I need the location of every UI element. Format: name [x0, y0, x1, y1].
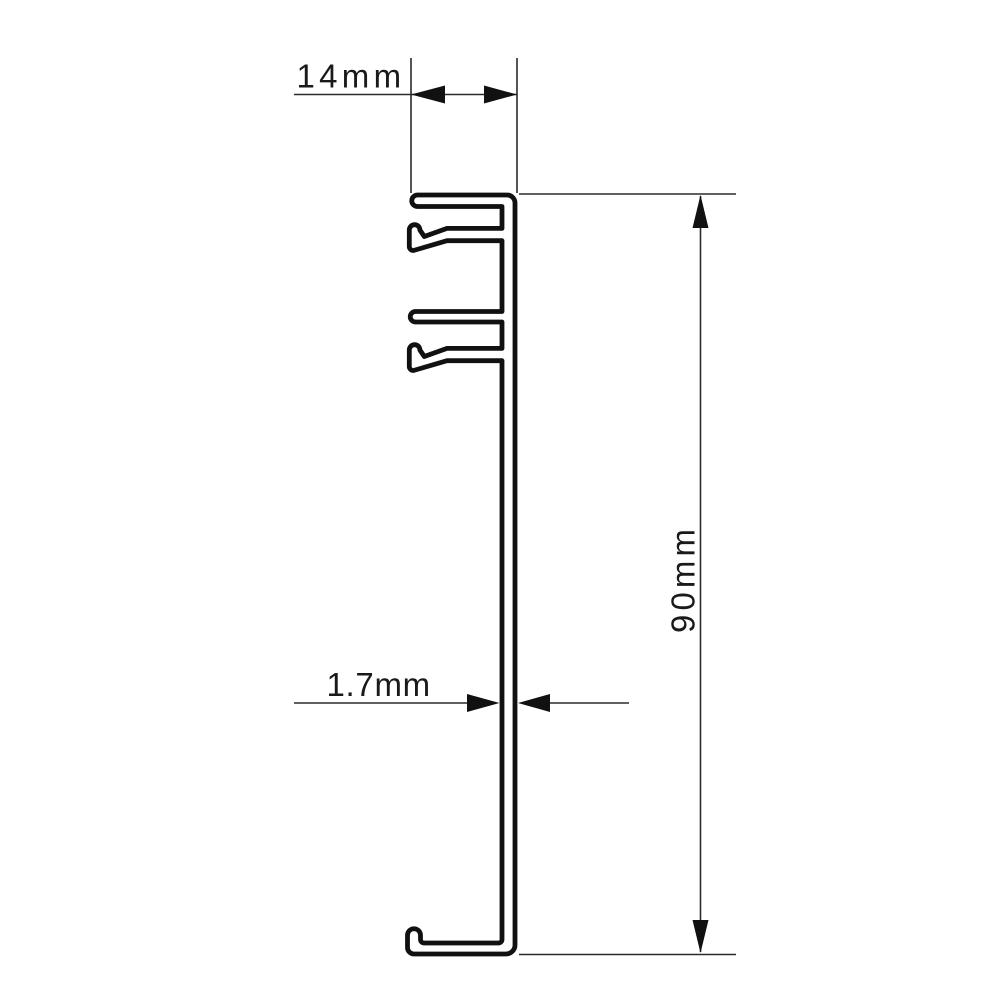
- svg-text:14mm: 14mm: [297, 58, 406, 95]
- svg-text:90mm: 90mm: [665, 525, 702, 633]
- svg-text:1.7mm: 1.7mm: [327, 666, 431, 703]
